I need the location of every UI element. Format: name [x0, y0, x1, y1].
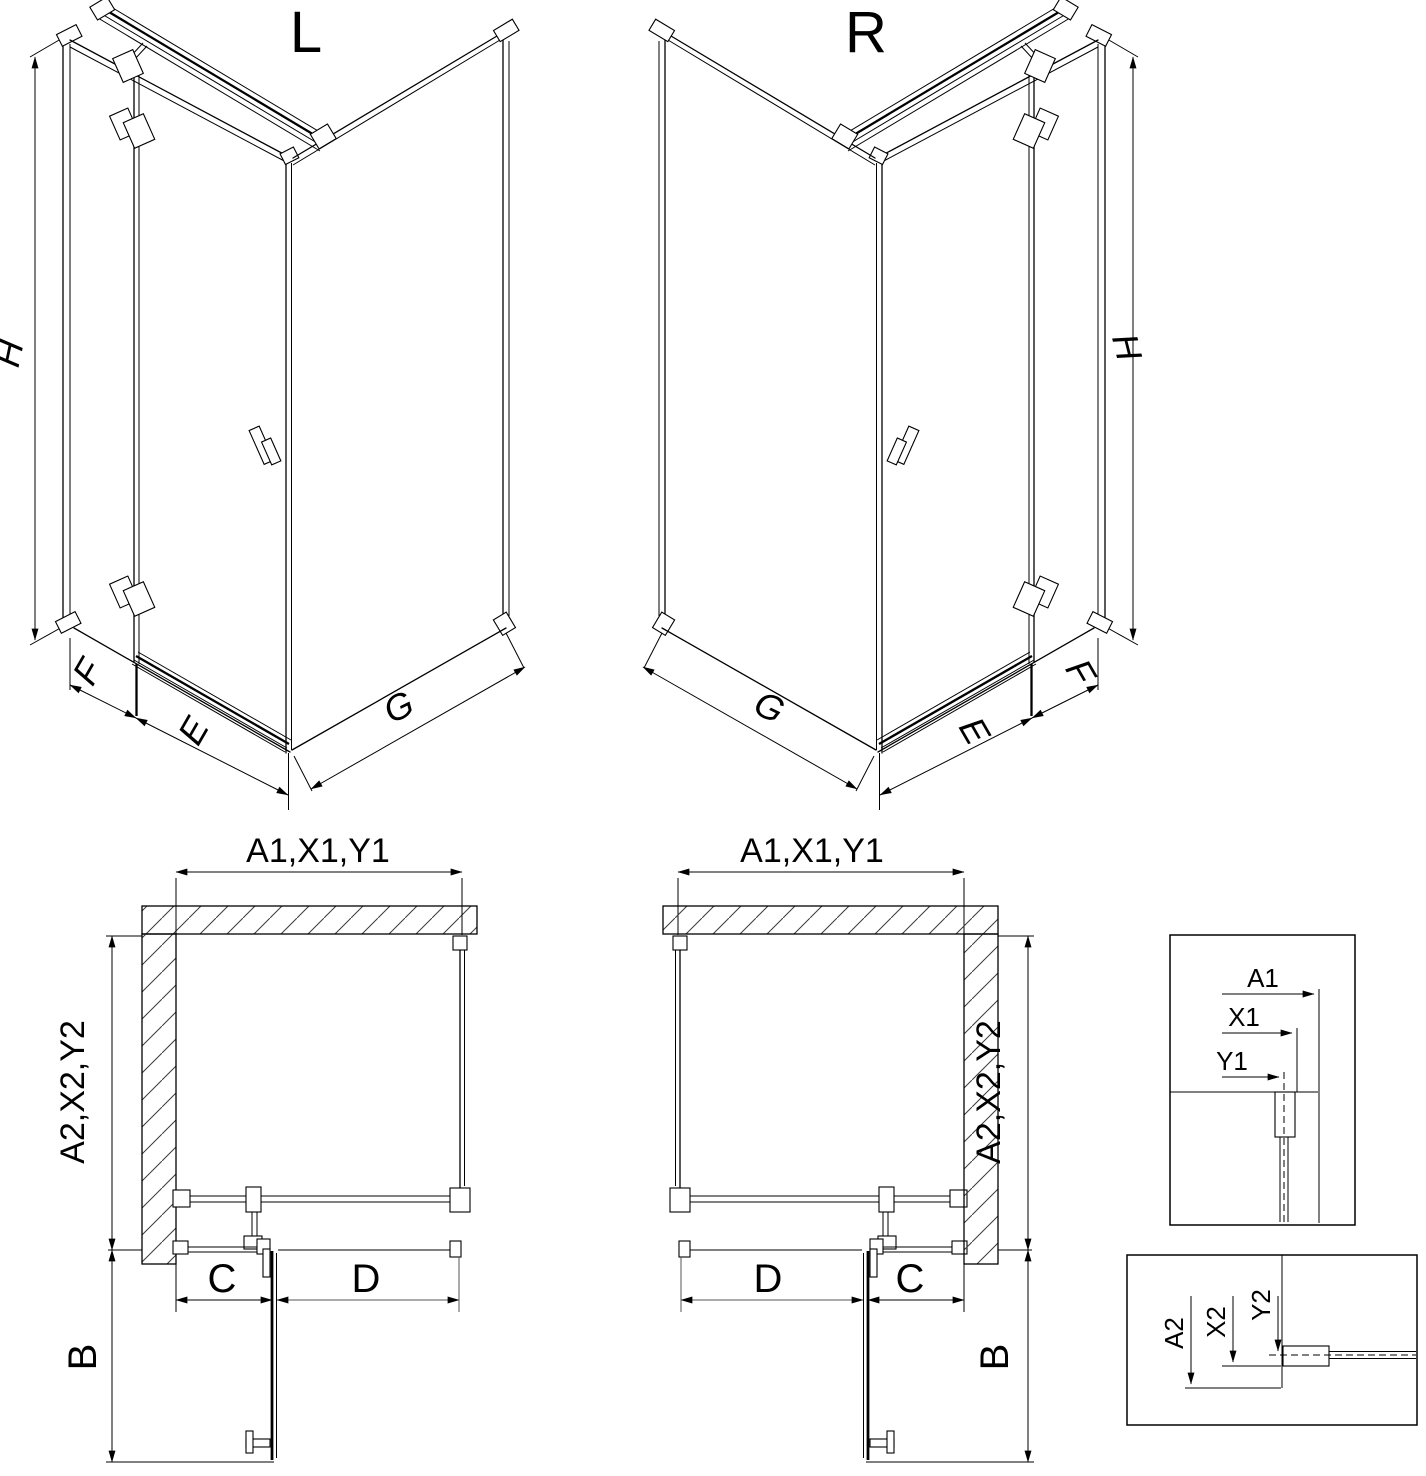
view-label-L: L: [290, 0, 322, 65]
wall-left-hatched: [142, 934, 176, 1264]
plan-left-b-label: B: [61, 1344, 105, 1371]
detail-box-width: A1 X1 Y1: [1170, 935, 1355, 1225]
plan-right-depth-label: A2,X2,Y2: [970, 1020, 1008, 1164]
plan-left-width-label: A1,X1,Y1: [246, 832, 390, 870]
view-label-R: R: [845, 0, 887, 65]
wall-profile-section-2: [1283, 1346, 1329, 1366]
plan-left-depth-label: A2,X2,Y2: [54, 1020, 92, 1164]
plan-right-d-label: D: [754, 1257, 783, 1301]
detail-x2-label: X2: [1201, 1306, 1231, 1338]
detail-a1-label: A1: [1247, 963, 1279, 993]
plan-left-d-label: D: [352, 1257, 381, 1301]
t-connector: [246, 1187, 261, 1212]
wall-top-hatched: [142, 906, 477, 934]
detail-box-depth: A2 X2 Y2: [1127, 1255, 1417, 1425]
plan-left-c-label: C: [208, 1257, 237, 1301]
plan-right-b-label: B: [973, 1344, 1017, 1371]
detail-x1-label: X1: [1228, 1002, 1260, 1032]
plan-right-width-label: A1,X1,Y1: [740, 832, 884, 870]
detail-a2-label: A2: [1159, 1317, 1189, 1349]
plan-right-c-label: C: [896, 1257, 925, 1301]
detail-y1-label: Y1: [1216, 1046, 1248, 1076]
drawing-canvas: L H F E G R H F E G: [0, 0, 1426, 1476]
drawing-page: L H F E G R H F E G: [0, 0, 1426, 1476]
wall-profile-section: [1275, 1092, 1295, 1137]
wall-top-hatched-right: [663, 906, 998, 934]
detail-y2-label: Y2: [1246, 1289, 1276, 1321]
